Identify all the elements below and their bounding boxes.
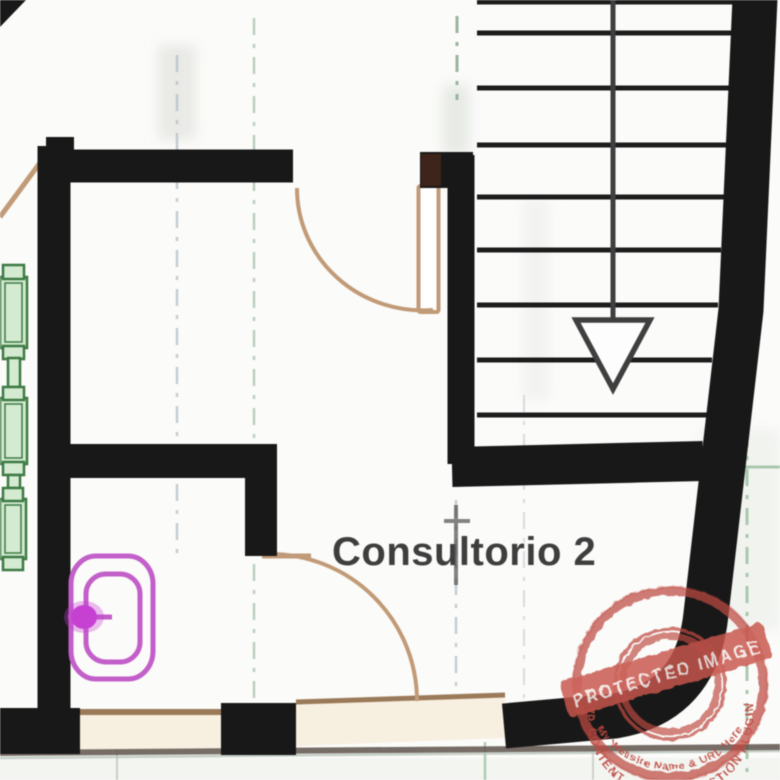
wall-corner-wedge: [0, 0, 26, 27]
door-swing-arc: [297, 188, 433, 310]
cabinet: [0, 387, 27, 475]
toilet-top-view-icon: [64, 556, 153, 679]
floor-plan-drawing: Consultorio 2 WP CONTENT COPY PROTECTION…: [0, 0, 780, 780]
door-hinge-block: [421, 154, 441, 186]
cabinet-connector: [8, 475, 20, 488]
floor-plan-canvas: Consultorio 2 WP CONTENT COPY PROTECTION…: [0, 0, 780, 780]
wall-stair-bottom: [452, 461, 703, 467]
door-leaf: [419, 186, 439, 312]
toilet-valve: [71, 605, 97, 629]
door-swing-arc: [270, 554, 417, 701]
cabinet-connector: [8, 358, 20, 387]
cabinet: [0, 488, 26, 570]
room-label: Consultorio 2: [332, 530, 596, 574]
window-band: [80, 710, 222, 750]
walls: [0, 0, 756, 731]
cabinet: [0, 265, 27, 359]
cabinets: [0, 265, 27, 570]
